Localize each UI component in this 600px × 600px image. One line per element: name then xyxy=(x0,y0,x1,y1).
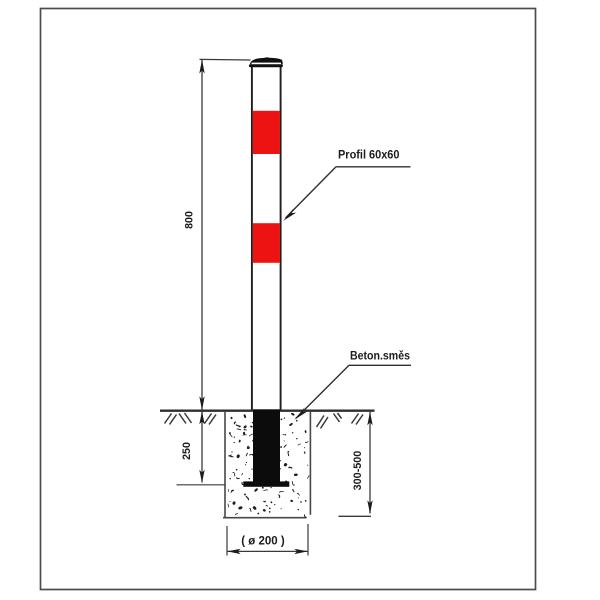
svg-text:800: 800 xyxy=(183,211,195,229)
svg-text:( ø 200 ): ( ø 200 ) xyxy=(241,536,285,548)
svg-text:250: 250 xyxy=(181,442,193,460)
svg-text:Beton.směs: Beton.směs xyxy=(350,349,410,363)
svg-text:300-500: 300-500 xyxy=(352,451,364,491)
svg-text:Profil 60x60: Profil 60x60 xyxy=(338,147,400,161)
